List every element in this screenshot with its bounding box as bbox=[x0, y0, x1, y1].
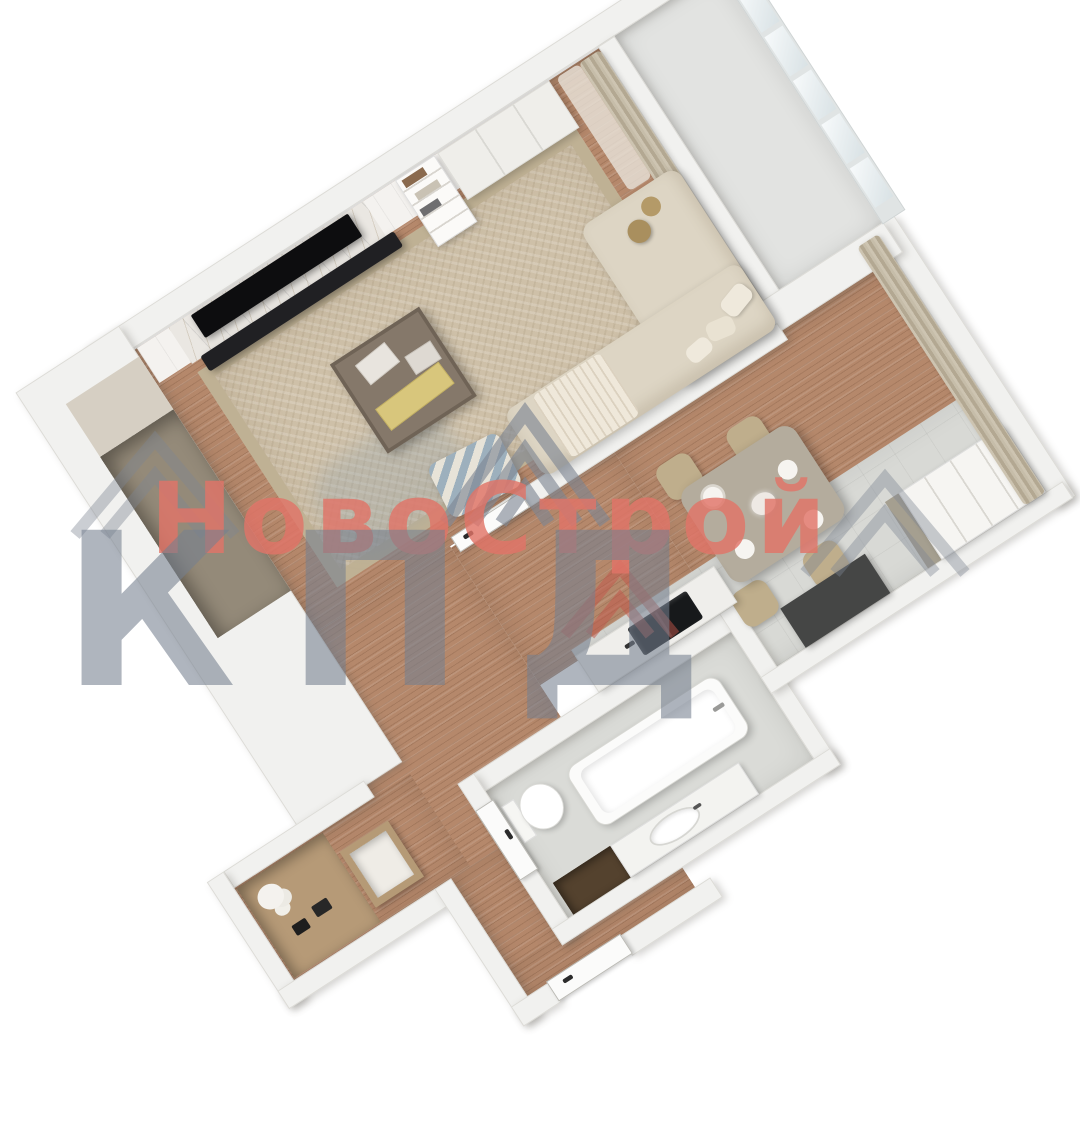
render-stage: НовоСтрой КПД bbox=[0, 0, 1080, 1080]
floorplan bbox=[0, 0, 1080, 1127]
